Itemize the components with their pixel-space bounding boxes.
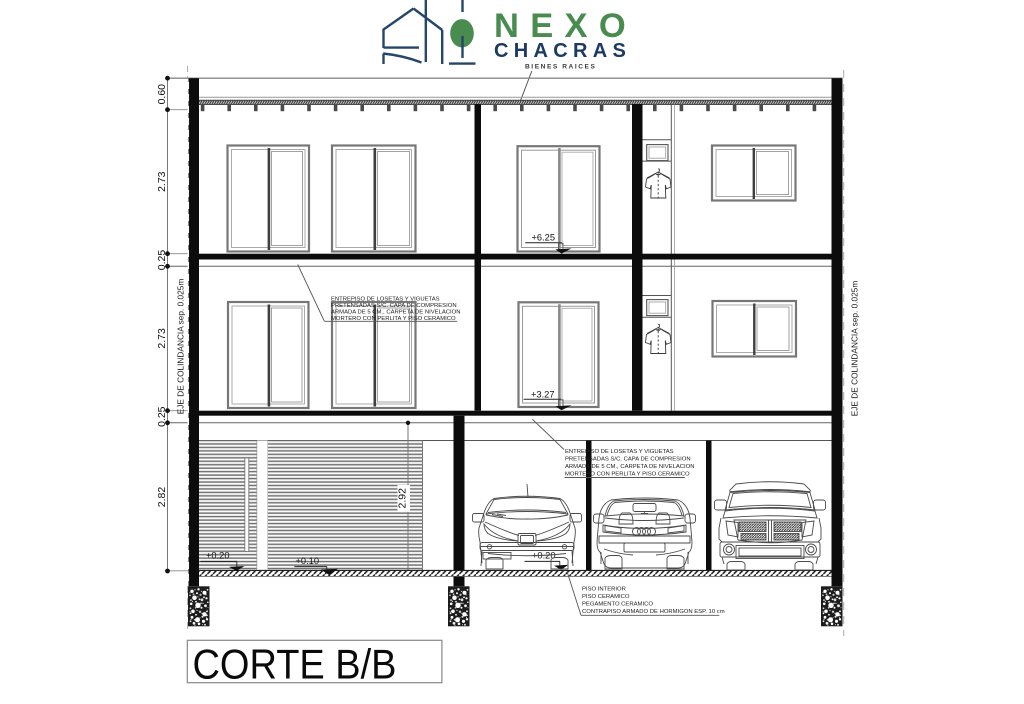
svg-text:CONTRAPISO ARMADO DE HORMIGON: CONTRAPISO ARMADO DE HORMIGON ESP. 10 cm bbox=[582, 609, 725, 615]
svg-text:+6.25: +6.25 bbox=[532, 233, 556, 243]
svg-text:ARMADA DE 5 CM., CARPETA DE NI: ARMADA DE 5 CM., CARPETA DE NIVELACION bbox=[565, 464, 695, 470]
svg-text:PISO CERAMICO: PISO CERAMICO bbox=[582, 594, 630, 600]
svg-text:2.92: 2.92 bbox=[396, 488, 408, 509]
svg-text:PISO INTERIOR: PISO INTERIOR bbox=[582, 586, 626, 592]
svg-text:ENTREPISO DE LOSETAS Y VIGUETA: ENTREPISO DE LOSETAS Y VIGUETAS bbox=[331, 296, 440, 302]
svg-text:BIENES RAICES: BIENES RAICES bbox=[525, 64, 596, 71]
svg-text:+0.20: +0.20 bbox=[206, 550, 230, 560]
svg-text:0.25: 0.25 bbox=[156, 250, 168, 271]
svg-text:+3.27: +3.27 bbox=[531, 390, 555, 400]
svg-text:PRETENSADAS S/C. CAPA DE COMPR: PRETENSADAS S/C. CAPA DE COMPRESION bbox=[565, 457, 691, 463]
svg-text:PRETENSADAS S/C. CAPA DE COMPR: PRETENSADAS S/C. CAPA DE COMPRESION bbox=[331, 303, 457, 309]
svg-text:2.73: 2.73 bbox=[156, 328, 168, 349]
svg-text:2.82: 2.82 bbox=[156, 487, 168, 508]
svg-text:0.25: 0.25 bbox=[156, 406, 168, 427]
svg-text:PEGAMENTO CERAMICO: PEGAMENTO CERAMICO bbox=[582, 601, 653, 607]
svg-text:+0.10: +0.10 bbox=[296, 556, 320, 566]
svg-text:0.60: 0.60 bbox=[156, 84, 168, 105]
svg-text:EJE DE COLINDANCIA sep. 0.025m: EJE DE COLINDANCIA sep. 0.025m bbox=[176, 279, 186, 415]
svg-text:MORTERO CON PERLITA Y PISO CER: MORTERO CON PERLITA Y PISO CERAMICO bbox=[565, 472, 690, 478]
svg-text:EJE DE COLINDANCIA sep. 0.025m: EJE DE COLINDANCIA sep. 0.025m bbox=[850, 281, 860, 417]
svg-text:CHACRAS: CHACRAS bbox=[494, 40, 631, 62]
svg-text:ENTREPISO DE LOSETAS Y VIGUETA: ENTREPISO DE LOSETAS Y VIGUETAS bbox=[565, 449, 674, 455]
svg-text:2.73: 2.73 bbox=[156, 171, 168, 192]
svg-text:CORTE B/B: CORTE B/B bbox=[193, 641, 397, 688]
svg-text:ARMADA DE 5 CM., CARPETA DE NI: ARMADA DE 5 CM., CARPETA DE NIVELACION bbox=[331, 309, 461, 315]
